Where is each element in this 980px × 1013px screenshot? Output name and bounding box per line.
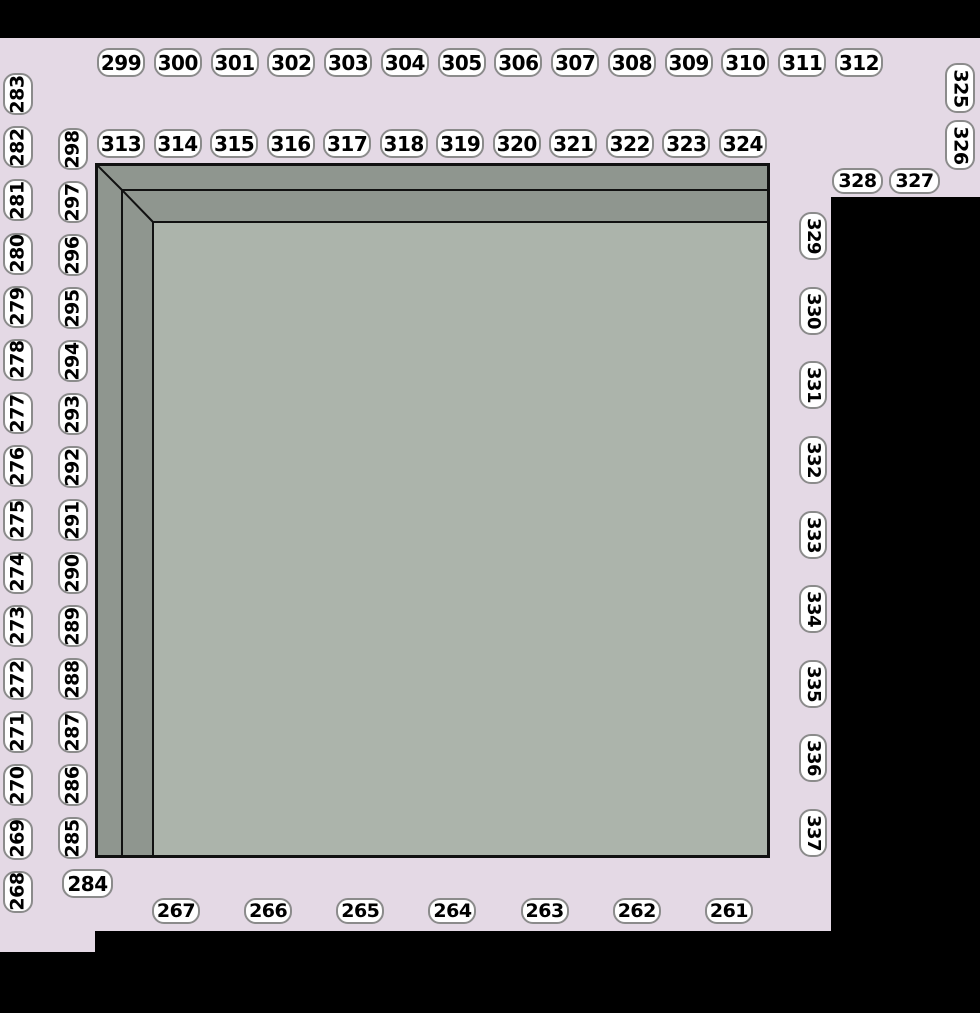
section-label-280[interactable]: 280 — [3, 233, 33, 275]
section-number-text: 268 — [9, 873, 28, 911]
section-number-text: 318 — [384, 134, 424, 154]
section-number-text: 261 — [710, 902, 748, 921]
section-label-291[interactable]: 291 — [58, 499, 88, 541]
section-label-314[interactable]: 314 — [154, 129, 202, 158]
section-number-text: 276 — [9, 447, 28, 485]
section-number-text: 315 — [214, 134, 254, 154]
section-label-318[interactable]: 318 — [380, 129, 428, 158]
section-row-top: 2993003013023033043053063073083093103113… — [97, 48, 883, 77]
section-label-299[interactable]: 299 — [97, 48, 145, 77]
section-pair-right: 328327 — [832, 168, 940, 194]
section-label-316[interactable]: 316 — [267, 129, 315, 158]
section-label-300[interactable]: 300 — [154, 48, 202, 77]
section-number-text: 304 — [385, 53, 425, 73]
section-label-276[interactable]: 276 — [3, 445, 33, 487]
section-label-309[interactable]: 309 — [665, 48, 713, 77]
section-number-text: 317 — [327, 134, 367, 154]
section-number-text: 335 — [804, 666, 822, 702]
section-number-text: 285 — [64, 819, 83, 857]
section-label-313[interactable]: 313 — [97, 129, 145, 158]
section-number-text: 280 — [9, 234, 28, 272]
section-number-text: 274 — [9, 554, 28, 592]
section-label-304[interactable]: 304 — [381, 48, 429, 77]
section-label-278[interactable]: 278 — [3, 339, 33, 381]
section-number-text: 289 — [64, 607, 83, 645]
section-number-text: 322 — [610, 134, 650, 154]
section-label-312[interactable]: 312 — [835, 48, 883, 77]
section-label-317[interactable]: 317 — [323, 129, 371, 158]
section-label-296[interactable]: 296 — [58, 234, 88, 276]
section-number-text: 314 — [157, 134, 197, 154]
section-label-298[interactable]: 298 — [58, 128, 88, 170]
section-number-text: 306 — [498, 53, 538, 73]
section-label-315[interactable]: 315 — [210, 129, 258, 158]
section-number-text: 308 — [612, 53, 652, 73]
section-label-297[interactable]: 297 — [58, 181, 88, 223]
section-label-305[interactable]: 305 — [438, 48, 486, 77]
section-label-330[interactable]: 330 — [799, 287, 827, 335]
section-column-left-inner: 2982972962952942932922912902892882872862… — [58, 128, 88, 859]
section-number-text: 307 — [555, 53, 595, 73]
section-label-274[interactable]: 274 — [3, 552, 33, 594]
section-number-text: 262 — [618, 902, 656, 921]
section-number-text: 320 — [497, 134, 537, 154]
section-number-text: 264 — [433, 902, 471, 921]
floor-rect — [95, 163, 770, 858]
section-number-text: 283 — [9, 75, 28, 113]
section-number-text: 297 — [64, 183, 83, 221]
section-number-text: 270 — [9, 766, 28, 804]
section-number-text: 273 — [9, 607, 28, 645]
section-number-text: 299 — [101, 53, 141, 73]
section-number-text: 298 — [64, 130, 83, 168]
section-label-267[interactable]: 267 — [152, 898, 200, 924]
section-label-308[interactable]: 308 — [608, 48, 656, 77]
section-label-265[interactable]: 265 — [336, 898, 384, 924]
section-label-303[interactable]: 303 — [324, 48, 372, 77]
section-number-text: 279 — [9, 288, 28, 326]
section-number-text: 267 — [157, 902, 195, 921]
section-number-text: 288 — [64, 660, 83, 698]
section-number-text: 323 — [666, 134, 706, 154]
section-number-text: 265 — [341, 902, 379, 921]
section-number-text: 336 — [804, 740, 822, 776]
section-label-288[interactable]: 288 — [58, 658, 88, 700]
section-label-270[interactable]: 270 — [3, 764, 33, 806]
section-number-text: 325 — [951, 69, 970, 107]
section-corner-bottom-left: 284 — [62, 869, 113, 898]
section-label-269[interactable]: 269 — [3, 818, 33, 860]
section-number-text: 277 — [9, 394, 28, 432]
section-label-307[interactable]: 307 — [551, 48, 599, 77]
section-label-322[interactable]: 322 — [606, 129, 654, 158]
section-number-text: 275 — [9, 500, 28, 538]
section-label-285[interactable]: 285 — [58, 817, 88, 859]
section-number-text: 329 — [804, 218, 822, 254]
section-row-bottom: 267266265264263262261 — [152, 898, 753, 924]
section-number-text: 292 — [64, 448, 83, 486]
section-column-right: 329330331332333334335336337 — [799, 212, 827, 857]
section-label-266[interactable]: 266 — [244, 898, 292, 924]
section-label-287[interactable]: 287 — [58, 711, 88, 753]
section-number-text: 319 — [440, 134, 480, 154]
section-number-text: 310 — [725, 53, 765, 73]
section-number-text: 332 — [804, 442, 822, 478]
section-label-332[interactable]: 332 — [799, 436, 827, 484]
section-number-text: 300 — [158, 53, 198, 73]
section-number-text: 294 — [64, 342, 83, 380]
section-number-text: 281 — [9, 181, 28, 219]
section-number-text: 337 — [804, 815, 822, 851]
section-label-273[interactable]: 273 — [3, 605, 33, 647]
section-number-text: 331 — [804, 367, 822, 403]
section-label-272[interactable]: 272 — [3, 658, 33, 700]
section-column-right-far: 325326 — [945, 63, 975, 170]
section-label-301[interactable]: 301 — [211, 48, 259, 77]
section-label-262[interactable]: 262 — [613, 898, 661, 924]
section-number-text: 303 — [328, 53, 368, 73]
section-number-text: 316 — [270, 134, 310, 154]
section-number-text: 293 — [64, 395, 83, 433]
section-label-263[interactable]: 263 — [521, 898, 569, 924]
section-number-text: 263 — [526, 902, 564, 921]
section-label-295[interactable]: 295 — [58, 287, 88, 329]
section-number-text: 313 — [101, 134, 141, 154]
section-number-text: 269 — [9, 820, 28, 858]
section-label-289[interactable]: 289 — [58, 605, 88, 647]
section-label-328[interactable]: 328 — [832, 168, 883, 194]
section-number-text: 311 — [782, 53, 822, 73]
section-number-text: 271 — [9, 713, 28, 751]
section-label-302[interactable]: 302 — [267, 48, 315, 77]
section-number-text: 326 — [951, 126, 970, 164]
section-label-325[interactable]: 325 — [945, 63, 975, 113]
section-label-336[interactable]: 336 — [799, 734, 827, 782]
section-label-331[interactable]: 331 — [799, 361, 827, 409]
section-number-text: 295 — [64, 289, 83, 327]
section-row-second: 313314315316317318319320321322323324 — [97, 129, 767, 158]
section-label-261[interactable]: 261 — [705, 898, 753, 924]
section-label-264[interactable]: 264 — [428, 898, 476, 924]
section-number-text: 284 — [67, 874, 107, 894]
section-number-text: 321 — [553, 134, 593, 154]
section-number-text: 301 — [214, 53, 254, 73]
section-number-text: 324 — [723, 134, 763, 154]
section-label-275[interactable]: 275 — [3, 499, 33, 541]
section-label-279[interactable]: 279 — [3, 286, 33, 328]
section-number-text: 327 — [895, 172, 933, 191]
section-label-333[interactable]: 333 — [799, 511, 827, 559]
section-number-text: 309 — [669, 53, 709, 73]
section-label-320[interactable]: 320 — [493, 129, 541, 158]
section-label-323[interactable]: 323 — [662, 129, 710, 158]
section-label-277[interactable]: 277 — [3, 392, 33, 434]
section-number-text: 302 — [271, 53, 311, 73]
section-label-326[interactable]: 326 — [945, 120, 975, 170]
section-label-271[interactable]: 271 — [3, 711, 33, 753]
section-label-292[interactable]: 292 — [58, 446, 88, 488]
section-label-294[interactable]: 294 — [58, 340, 88, 382]
section-number-text: 305 — [441, 53, 481, 73]
section-number-text: 266 — [249, 902, 287, 921]
section-number-text: 296 — [64, 236, 83, 274]
section-column-left-outer: 2832822812802792782772762752742732722712… — [3, 73, 33, 913]
section-label-283[interactable]: 283 — [3, 73, 33, 115]
section-label-329[interactable]: 329 — [799, 212, 827, 260]
section-number-text: 330 — [804, 293, 822, 329]
section-number-text: 287 — [64, 713, 83, 751]
section-number-text: 328 — [838, 172, 876, 191]
section-label-334[interactable]: 334 — [799, 585, 827, 633]
section-number-text: 286 — [64, 766, 83, 804]
section-label-310[interactable]: 310 — [721, 48, 769, 77]
venue-map-canvas: 2993003013023033043053063073083093103113… — [0, 0, 980, 1013]
section-label-293[interactable]: 293 — [58, 393, 88, 435]
section-number-text: 334 — [804, 591, 822, 627]
section-number-text: 312 — [839, 53, 879, 73]
section-label-337[interactable]: 337 — [799, 809, 827, 857]
section-label-282[interactable]: 282 — [3, 126, 33, 168]
section-label-306[interactable]: 306 — [494, 48, 542, 77]
section-number-text: 333 — [804, 516, 822, 552]
section-label-321[interactable]: 321 — [549, 129, 597, 158]
section-number-text: 272 — [9, 660, 28, 698]
section-label-284[interactable]: 284 — [62, 869, 113, 898]
section-label-281[interactable]: 281 — [3, 179, 33, 221]
field-floor-area — [95, 163, 770, 858]
section-label-319[interactable]: 319 — [436, 129, 484, 158]
section-label-335[interactable]: 335 — [799, 660, 827, 708]
section-label-324[interactable]: 324 — [719, 129, 767, 158]
section-label-327[interactable]: 327 — [889, 168, 940, 194]
section-label-268[interactable]: 268 — [3, 871, 33, 913]
section-label-286[interactable]: 286 — [58, 764, 88, 806]
section-label-290[interactable]: 290 — [58, 552, 88, 594]
section-number-text: 290 — [64, 554, 83, 592]
section-label-311[interactable]: 311 — [778, 48, 826, 77]
section-number-text: 282 — [9, 128, 28, 166]
section-number-text: 291 — [64, 501, 83, 539]
section-number-text: 278 — [9, 341, 28, 379]
